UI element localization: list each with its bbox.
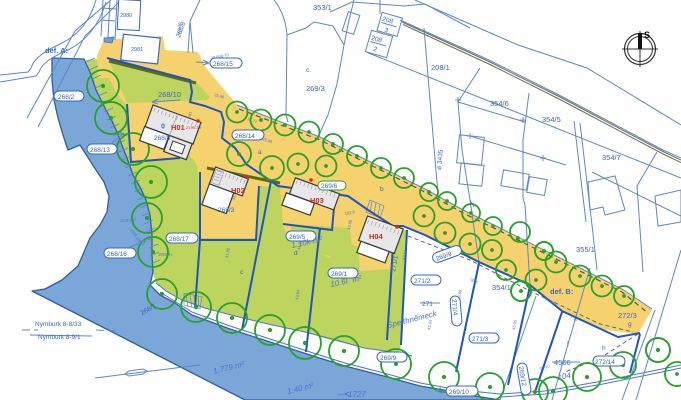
svg-text:1059-41: 1059-41	[158, 251, 174, 257]
svg-text:353/1: 353/1	[313, 3, 332, 12]
svg-text:1119-107: 1119-107	[120, 217, 137, 223]
svg-text:H04: H04	[369, 232, 384, 241]
svg-text:a: a	[258, 149, 262, 156]
svg-text:268/14: 268/14	[235, 133, 255, 140]
svg-text:268/3: 268/3	[218, 207, 235, 214]
svg-text:Nymburk 8-8/33: Nymburk 8-8/33	[35, 321, 82, 328]
svg-text:208/1: 208/1	[431, 63, 450, 72]
svg-text:def. A:: def. A:	[45, 46, 68, 55]
svg-text:354/1: 354/1	[492, 283, 511, 292]
svg-text:Nymburk 8-9/1: Nymburk 8-9/1	[38, 334, 81, 341]
svg-text:H03: H03	[310, 196, 324, 205]
svg-text:271: 271	[422, 301, 433, 308]
svg-text:268/10: 268/10	[158, 90, 181, 99]
svg-text:271/3: 271/3	[472, 336, 489, 343]
svg-text:268/2: 268/2	[58, 94, 75, 101]
svg-text:h: h	[602, 345, 606, 352]
svg-text:272/14: 272/14	[595, 359, 615, 366]
svg-text:1727: 1727	[348, 390, 366, 399]
svg-text:H02: H02	[231, 186, 245, 195]
svg-text:2199-TX: 2199-TX	[186, 125, 202, 130]
svg-text:268/8: 268/8	[154, 135, 171, 142]
svg-text:271/2: 271/2	[414, 278, 431, 285]
svg-text:269/10: 269/10	[449, 389, 469, 396]
svg-text:def. B:: def. B:	[550, 287, 573, 296]
svg-text:g: g	[628, 321, 632, 328]
svg-text:269/9: 269/9	[380, 355, 397, 362]
svg-text:S: S	[644, 30, 650, 40]
svg-text:271/4: 271/4	[450, 299, 458, 316]
svg-text:H01: H01	[171, 123, 185, 132]
svg-text:d: d	[294, 250, 298, 257]
svg-text:269/6: 269/6	[321, 183, 338, 190]
svg-text:f: f	[567, 341, 569, 348]
svg-text:268/16: 268/16	[107, 251, 127, 258]
svg-text:b: b	[380, 186, 384, 193]
svg-text:355/1: 355/1	[576, 245, 595, 254]
svg-text:c.: c.	[306, 67, 311, 74]
svg-text:268/13: 268/13	[90, 147, 110, 154]
svg-text:354/7: 354/7	[602, 153, 621, 162]
svg-text:268/15: 268/15	[213, 61, 233, 68]
svg-text:2980: 2980	[120, 13, 132, 19]
svg-text:268/17: 268/17	[169, 236, 189, 243]
svg-text:272/3: 272/3	[618, 311, 637, 320]
svg-text:2981: 2981	[131, 47, 143, 53]
svg-text:354/6: 354/6	[490, 99, 509, 108]
svg-text:354/5: 354/5	[542, 115, 561, 124]
svg-text:269/3: 269/3	[306, 84, 325, 93]
